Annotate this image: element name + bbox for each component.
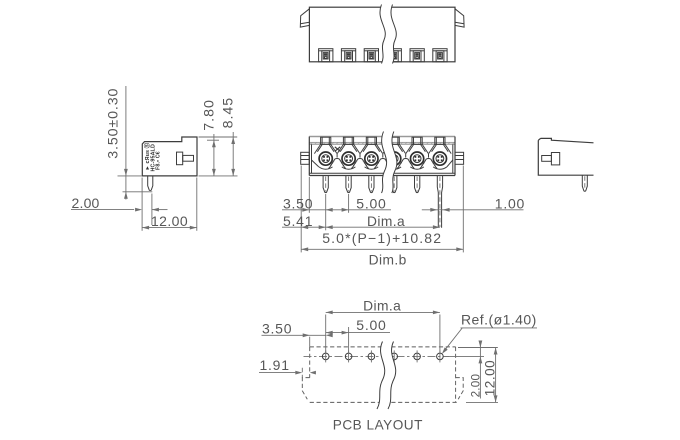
svg-text:2.00: 2.00: [470, 374, 483, 398]
svg-text:8.45: 8.45: [221, 97, 237, 129]
svg-text:2.00: 2.00: [72, 195, 100, 211]
svg-text:7.80: 7.80: [201, 99, 217, 131]
svg-text:5.0*(P−1)+10.82: 5.0*(P−1)+10.82: [322, 230, 442, 246]
svg-text:1.91: 1.91: [260, 357, 290, 373]
svg-text:5.41: 5.41: [283, 213, 313, 229]
svg-text:Dim.a: Dim.a: [363, 299, 401, 314]
svg-text:Dim.a: Dim.a: [367, 214, 405, 229]
svg-text:3.50: 3.50: [283, 195, 313, 211]
svg-text:5.00: 5.00: [356, 195, 386, 211]
svg-text:5.00: 5.00: [356, 317, 386, 333]
svg-text:1.00: 1.00: [495, 195, 525, 211]
svg-text:3.50±0.30: 3.50±0.30: [105, 88, 121, 159]
svg-text:12.00: 12.00: [151, 213, 188, 229]
svg-text:Ref.(ø1.40): Ref.(ø1.40): [461, 311, 537, 327]
svg-text:3.50: 3.50: [262, 321, 292, 337]
svg-text:PCB LAYOUT: PCB LAYOUT: [333, 418, 423, 433]
svg-text:F8.▪ C€: F8.▪ C€: [156, 151, 162, 170]
svg-text:12.00: 12.00: [482, 360, 497, 397]
svg-text:Dim.b: Dim.b: [369, 252, 407, 267]
